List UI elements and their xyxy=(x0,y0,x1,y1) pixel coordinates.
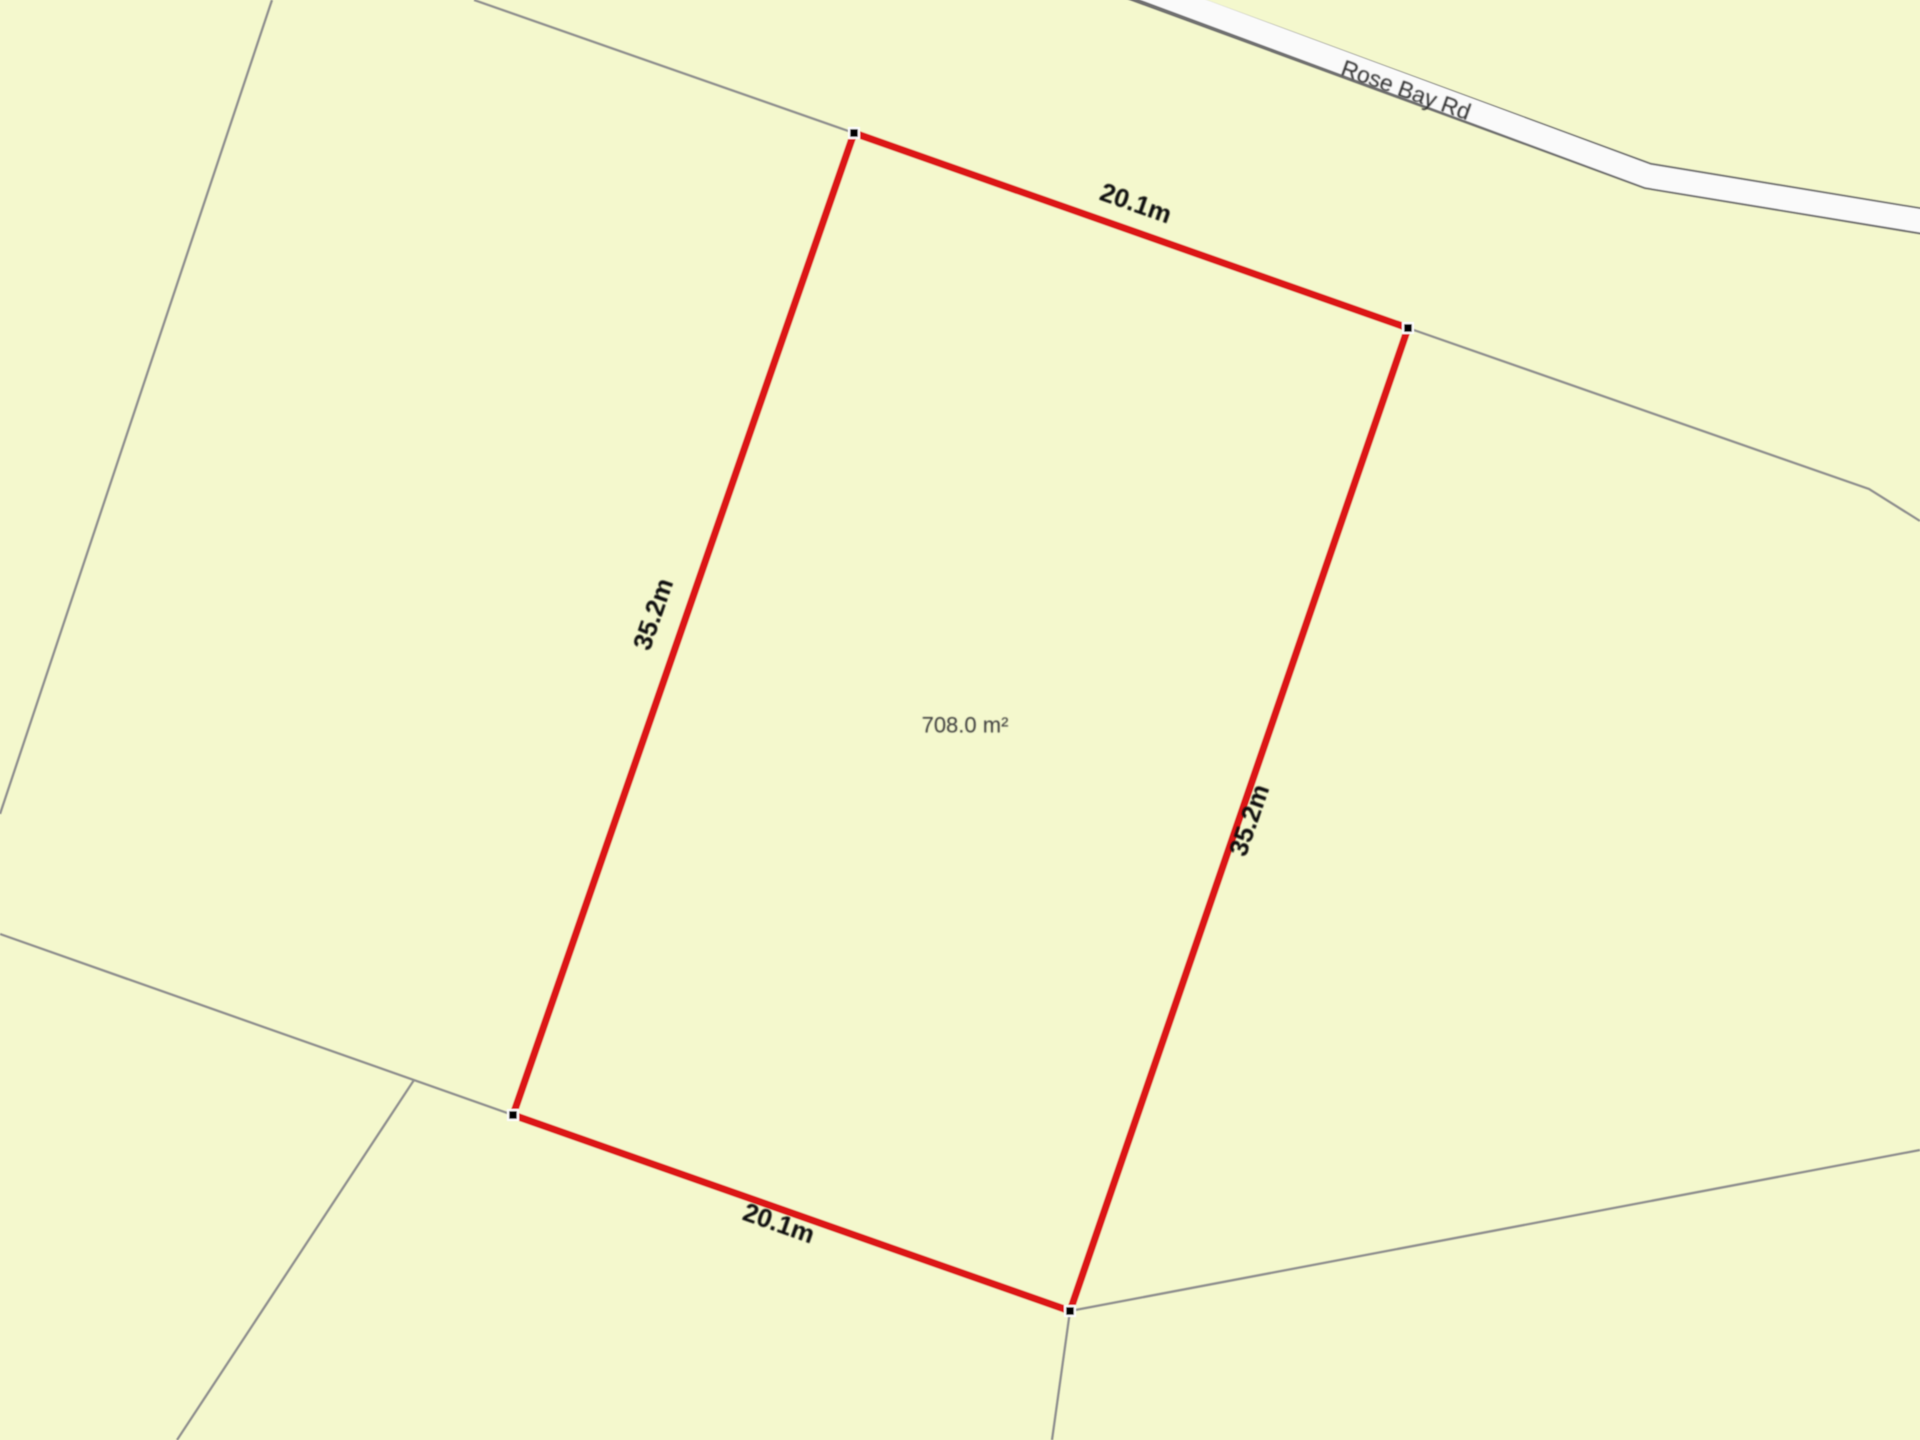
svg-text:708.0 m²: 708.0 m² xyxy=(922,713,1009,738)
